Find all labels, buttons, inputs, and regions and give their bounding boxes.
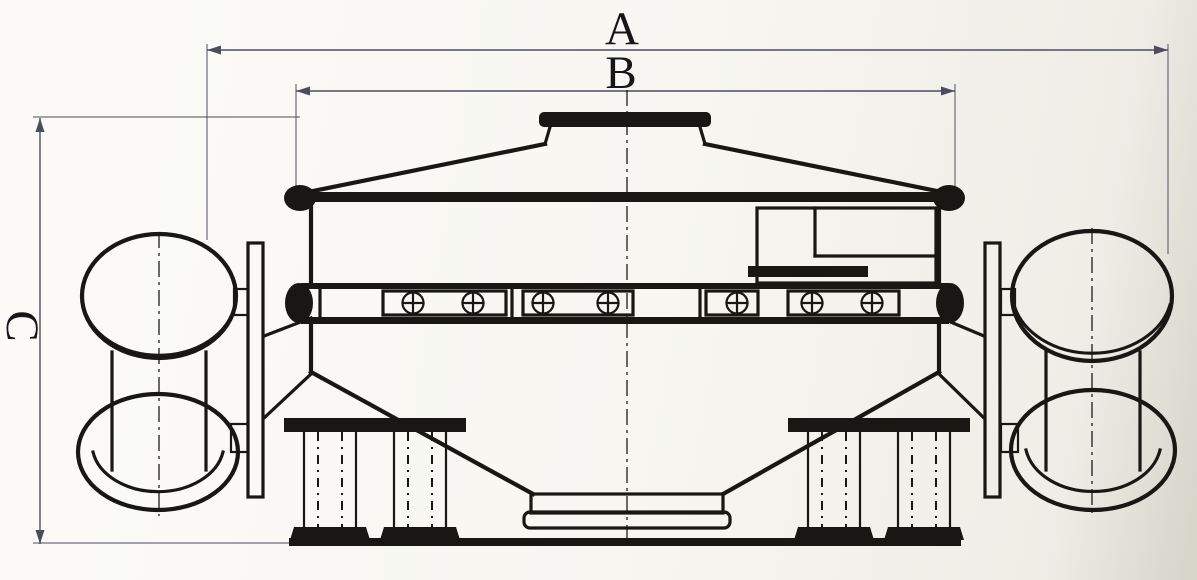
dim-c-arrow-top [36, 118, 45, 132]
dim-a-arrow-right [1154, 46, 1168, 55]
inlet-neck-left [545, 127, 550, 144]
dim-b-arrow-right [941, 87, 955, 96]
spring-leg [878, 418, 970, 540]
right-mount-plate [985, 243, 1000, 497]
bolt [802, 293, 823, 314]
spring-leg [284, 418, 376, 540]
right-vibromotor [939, 231, 1175, 510]
lid-rim-band [302, 192, 948, 202]
band-boss-left [285, 283, 313, 323]
band-bolts [403, 293, 883, 314]
inlet-neck-right [700, 127, 705, 144]
bolt [403, 293, 424, 314]
dimension-a: A [207, 3, 1168, 254]
bolt [533, 293, 554, 314]
bolt [727, 293, 748, 314]
inlet-flange-cap [539, 112, 711, 127]
dim-a-arrow-left [207, 46, 221, 55]
lid-slope-right [705, 144, 937, 191]
left-vibromotor [78, 234, 311, 510]
cone-slope-left [311, 372, 533, 494]
dimension-c: C [0, 117, 300, 544]
clamp-band [285, 283, 964, 324]
cone-slope-right [723, 372, 939, 494]
right-strut-upper [941, 318, 984, 336]
spring-leg [374, 418, 466, 540]
left-strut-lower [264, 374, 311, 418]
tumbler-screen-drawing: A B C [0, 0, 1197, 580]
lid-cover [284, 144, 965, 211]
right-strut-lower [939, 374, 984, 418]
dim-c-arrow-bottom [36, 530, 45, 544]
bolt [862, 293, 883, 314]
dim-b-arrow-left [296, 87, 310, 96]
dim-b-label: B [605, 47, 636, 99]
lid-slope-left [313, 144, 545, 191]
bolt [598, 293, 619, 314]
spring-leg [788, 418, 880, 540]
band-rail-bottom [301, 317, 949, 324]
machine-body [284, 112, 965, 546]
discharge-spout [748, 208, 936, 283]
band-rail-top [301, 283, 949, 289]
bolt [463, 293, 484, 314]
left-mount-plate [248, 243, 263, 497]
discharge-cone [311, 324, 939, 494]
left-strut-upper [264, 318, 311, 336]
technical-drawing-canvas: A B C [0, 0, 1197, 580]
top-inlet [539, 112, 711, 144]
spout-flange-bar [748, 266, 868, 277]
dim-c-label: C [0, 310, 48, 341]
